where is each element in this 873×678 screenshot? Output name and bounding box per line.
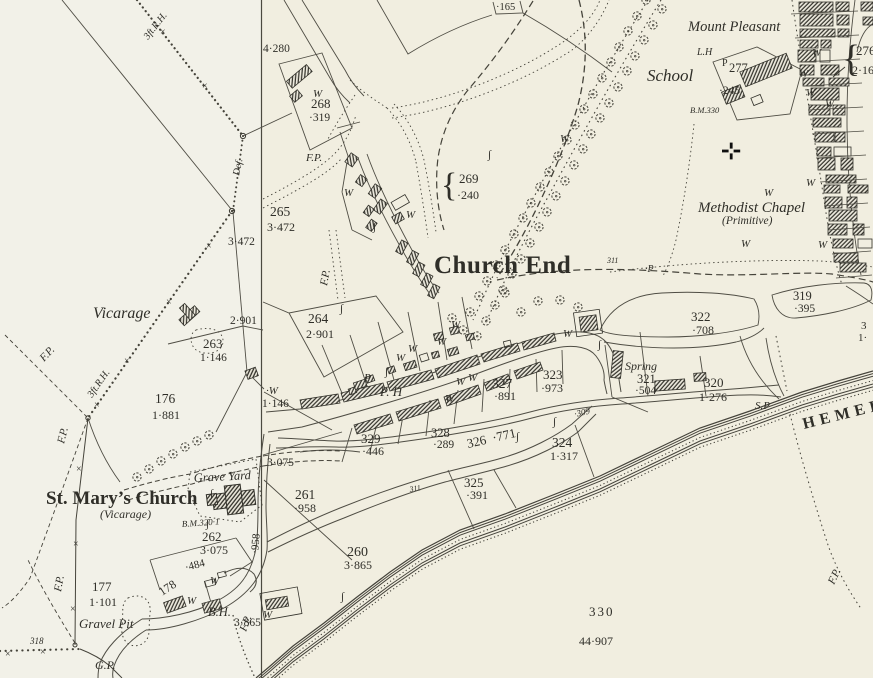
svg-text:Vicarage: Vicarage — [93, 305, 150, 322]
svg-text:W: W — [825, 98, 835, 110]
svg-text:W: W — [437, 336, 447, 348]
svg-text:3: 3 — [861, 320, 867, 332]
svg-text:×: × — [40, 647, 46, 658]
svg-text:311: 311 — [606, 256, 618, 265]
svg-text:Spring: Spring — [625, 359, 657, 373]
svg-text:328: 328 — [431, 426, 450, 440]
svg-text:324: 324 — [552, 435, 573, 450]
svg-text:{: { — [842, 38, 860, 80]
svg-text:B.H.: B.H. — [208, 605, 231, 619]
svg-text:×: × — [73, 539, 79, 550]
svg-text:W: W — [560, 133, 570, 145]
svg-text:P. H: P. H — [379, 384, 403, 399]
svg-text:261: 261 — [295, 487, 315, 502]
svg-text:×: × — [124, 356, 130, 367]
svg-text:(Vicarage): (Vicarage) — [100, 507, 151, 521]
svg-text:318: 318 — [29, 636, 44, 646]
svg-text:×: × — [76, 464, 82, 475]
svg-text:1·317: 1·317 — [550, 449, 578, 463]
svg-text:263: 263 — [203, 336, 223, 351]
svg-text:S.P: S.P — [755, 400, 770, 412]
svg-text:4·280: 4·280 — [263, 43, 290, 55]
svg-text:W: W — [210, 575, 220, 587]
svg-text:W: W — [563, 328, 573, 340]
svg-text:×: × — [70, 604, 76, 615]
svg-text:Church End: Church End — [434, 252, 571, 279]
svg-text:W: W — [812, 47, 822, 59]
svg-text:×: × — [206, 241, 212, 252]
svg-text:1·: 1· — [858, 332, 867, 344]
svg-text:W: W — [764, 187, 774, 199]
svg-text:·958: ·958 — [294, 501, 316, 515]
svg-text:W: W — [818, 239, 828, 251]
svg-text:G.P.: G.P. — [95, 658, 115, 672]
svg-text:264: 264 — [308, 311, 329, 326]
svg-text:277: 277 — [729, 61, 748, 75]
svg-text:1·101: 1·101 — [89, 595, 117, 609]
svg-text:W: W — [468, 372, 478, 384]
svg-text:×: × — [5, 649, 11, 660]
svg-text:×: × — [202, 81, 208, 92]
svg-text:×: × — [160, 27, 166, 38]
svg-text:W: W — [313, 88, 323, 100]
svg-text:·289: ·289 — [433, 439, 454, 451]
svg-text:322: 322 — [691, 309, 711, 324]
svg-text:·958: ·958 — [249, 533, 263, 555]
svg-text:2·901: 2·901 — [230, 315, 257, 327]
svg-text:320: 320 — [704, 375, 724, 390]
svg-text:3·472: 3·472 — [228, 236, 255, 248]
svg-text:Gravel Pit: Gravel Pit — [79, 616, 134, 631]
svg-text:W: W — [396, 352, 406, 364]
svg-text:2·901: 2·901 — [306, 327, 334, 341]
svg-text:·W: ·W — [266, 385, 279, 397]
svg-text:W: W — [445, 393, 455, 405]
svg-text:W: W — [451, 319, 461, 331]
svg-text:W: W — [806, 87, 816, 99]
svg-text:W: W — [806, 177, 816, 189]
svg-text:1·276: 1·276 — [699, 390, 727, 404]
svg-text:269: 269 — [459, 171, 479, 186]
svg-text:School: School — [647, 66, 694, 85]
svg-text:323: 323 — [543, 367, 563, 382]
svg-text:3·865: 3·865 — [344, 558, 372, 572]
svg-text:319: 319 — [793, 289, 812, 303]
svg-text:1·146: 1·146 — [262, 398, 289, 410]
svg-text:W: W — [263, 609, 273, 621]
svg-text:W: W — [187, 595, 197, 607]
svg-text:·319: ·319 — [309, 112, 330, 124]
svg-text:321: 321 — [637, 372, 656, 386]
svg-text:·P: ·P — [645, 264, 654, 275]
svg-text:(Primitive): (Primitive) — [722, 215, 773, 227]
svg-text:·395: ·395 — [794, 303, 815, 315]
svg-text:W: W — [406, 209, 416, 221]
svg-text:W: W — [456, 376, 466, 388]
svg-text:W: W — [344, 187, 354, 199]
svg-text:Methodist Chapel: Methodist Chapel — [697, 200, 805, 216]
svg-text:177: 177 — [92, 579, 112, 594]
svg-text:3·472: 3·472 — [267, 220, 295, 234]
svg-text:262: 262 — [202, 529, 222, 544]
svg-text:176: 176 — [155, 391, 176, 406]
svg-text:·446: ·446 — [362, 444, 384, 458]
svg-text:·973: ·973 — [541, 381, 563, 395]
svg-text:×: × — [94, 400, 100, 411]
svg-text:1·146: 1·146 — [200, 352, 227, 364]
svg-text:1·881: 1·881 — [152, 408, 180, 422]
svg-text:3·075: 3·075 — [200, 543, 228, 557]
svg-text:L.H: L.H — [696, 47, 713, 58]
svg-text:{: { — [441, 167, 457, 204]
svg-text:3·075: 3·075 — [267, 457, 294, 469]
svg-text:W: W — [408, 343, 418, 355]
svg-text:44·907: 44·907 — [579, 634, 613, 648]
svg-text:F.P.: F.P. — [305, 152, 322, 164]
svg-text:·891: ·891 — [494, 389, 516, 403]
svg-text:·165: ·165 — [496, 2, 515, 13]
svg-text:·504: ·504 — [635, 385, 656, 397]
svg-text:B.M.330: B.M.330 — [690, 105, 720, 115]
svg-text:265: 265 — [270, 204, 291, 219]
svg-text:·708: ·708 — [692, 323, 714, 337]
svg-text:330: 330 — [589, 604, 615, 619]
svg-text:·391: ·391 — [466, 488, 488, 502]
svg-text:W: W — [741, 238, 751, 250]
svg-text:·245: ·245 — [719, 85, 740, 97]
svg-text:Mount Pleasant: Mount Pleasant — [687, 19, 781, 35]
svg-text:×: × — [166, 297, 172, 308]
svg-text:P: P — [722, 58, 728, 69]
svg-text:P: P — [363, 372, 371, 384]
svg-text:·240: ·240 — [457, 188, 479, 202]
svg-text:W: W — [799, 68, 809, 80]
svg-text:St. Mary’s Church: St. Mary’s Church — [46, 488, 198, 509]
